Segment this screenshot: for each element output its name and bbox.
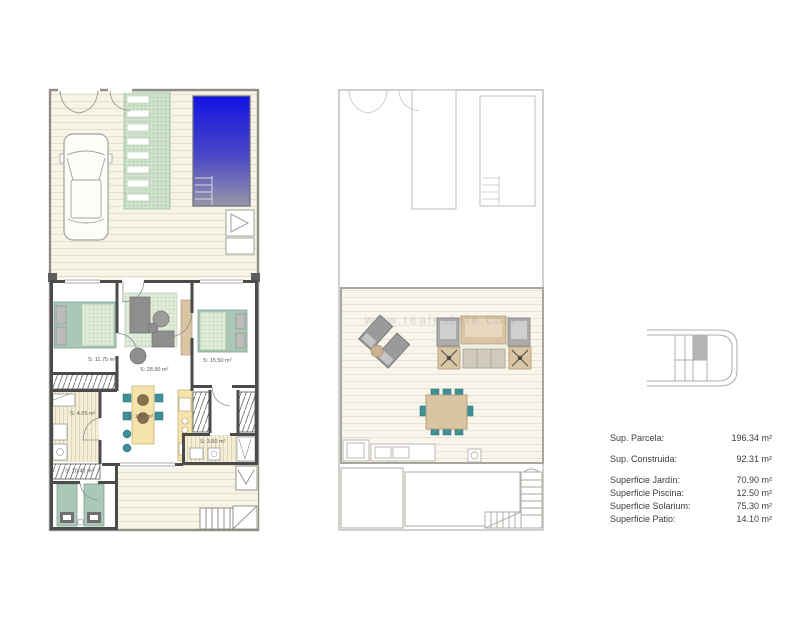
legend-value: 196.34 m² [731, 432, 772, 445]
room-label-living: S: 28.90 m² [140, 367, 169, 373]
legend-label: Superficie Piscina: [610, 487, 684, 500]
bedroom2-furniture [198, 310, 247, 352]
legend-row: Sup. Construida: 92.31 m² [610, 453, 772, 466]
door-opening [108, 88, 132, 93]
bedroom1-furniture [54, 302, 116, 348]
car-icon [60, 134, 112, 240]
garden-path [124, 90, 170, 209]
legend-value: 14.10 m² [736, 513, 772, 526]
legend-label: Sup. Construida: [610, 453, 677, 466]
coffee-table [463, 349, 505, 368]
legend-label: Superficie Patio: [610, 513, 676, 526]
outdoor-shower [226, 210, 254, 254]
legend-label: Sup. Parcela: [610, 432, 664, 445]
surface-legend: Sup. Parcela: 196.34 m² Sup. Construida:… [610, 432, 772, 526]
outdoor-dining [420, 389, 473, 435]
watermark: www.realestate.com [338, 312, 543, 327]
stair-key-detail [645, 322, 745, 394]
legend-value: 75.30 m² [736, 500, 772, 513]
legend-value: 92.31 m² [736, 453, 772, 466]
room-label-hall: S: 1.80 m² [128, 414, 154, 420]
legend-value: 70.90 m² [736, 474, 772, 487]
room-label-bedroom2: S: 15.50 m² [203, 358, 232, 364]
sideboard [181, 300, 192, 355]
pool [193, 96, 250, 206]
sofa [130, 297, 150, 333]
legend-row: Superficie Patio: 14.10 m² [610, 513, 772, 526]
room-label-bedroom1: S: 11.75 m² [88, 357, 116, 363]
legend-value: 12.50 m² [736, 487, 772, 500]
garden-area [50, 90, 258, 280]
legend-row: Superficie Jardín: 70.90 m² [610, 474, 772, 487]
side-table-round [371, 345, 383, 357]
legend-row: Sup. Parcela: 196.34 m² [610, 432, 772, 445]
legend-label: Superficie Solarium: [610, 500, 691, 513]
room-label-patio: S: 10.40 m² [65, 469, 94, 475]
legend-row: Superficie Piscina: 12.50 m² [610, 487, 772, 500]
bathroom1 [52, 392, 99, 462]
legend-row: Superficie Solarium: 75.30 m² [610, 500, 772, 513]
gate-opening [58, 88, 100, 93]
room-label-bathroom1: S: 4.05 m² [70, 411, 96, 417]
room-label-bathroom2: S: 3.60 m² [200, 439, 226, 445]
legend-label: Superficie Jardín: [610, 474, 680, 487]
ground-floor-plan: S: 11.75 m² S: 28.90 m² S: 15.50 m² S: 4… [40, 88, 268, 536]
